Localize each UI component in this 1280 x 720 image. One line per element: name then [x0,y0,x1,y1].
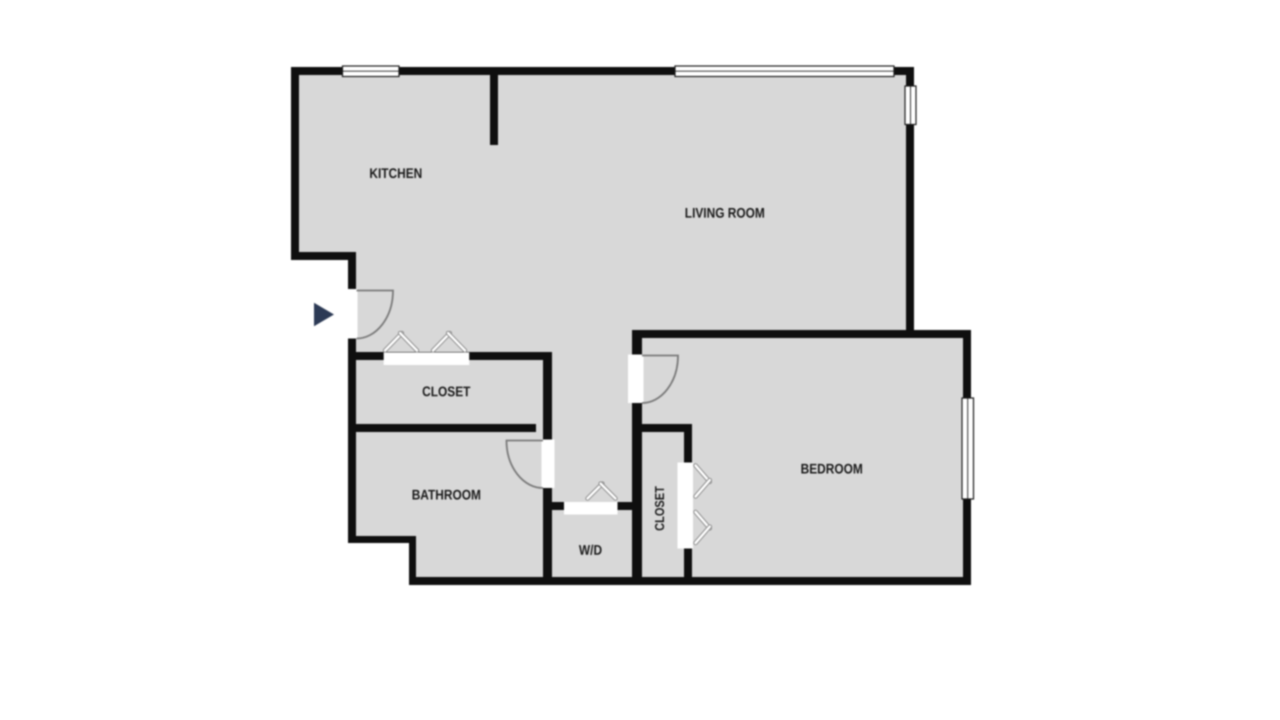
svg-text:LIVING ROOM: LIVING ROOM [685,205,765,221]
svg-text:CLOSET: CLOSET [422,383,471,399]
svg-text:BATHROOM: BATHROOM [412,486,481,502]
svg-text:KITCHEN: KITCHEN [369,165,422,181]
svg-text:BEDROOM: BEDROOM [801,460,863,476]
svg-text:W/D: W/D [579,542,602,558]
svg-text:CLOSET: CLOSET [652,486,667,531]
